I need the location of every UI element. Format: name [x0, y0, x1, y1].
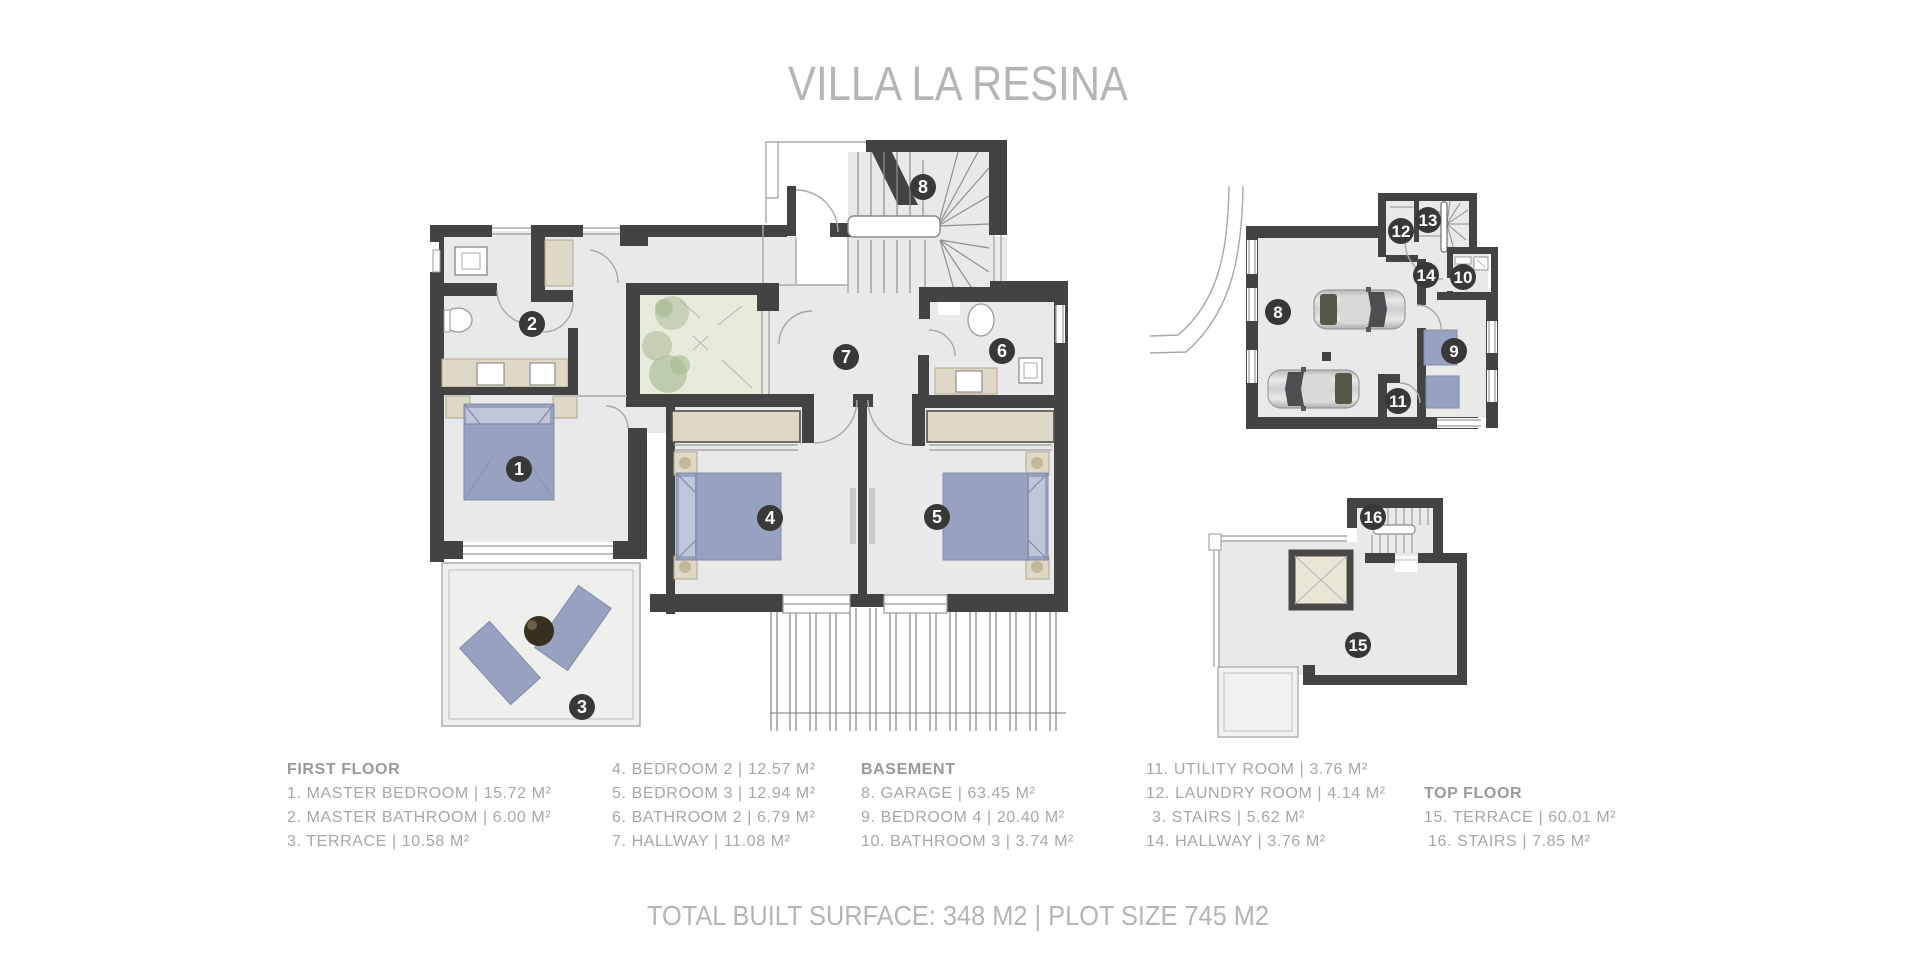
svg-text:1: 1	[514, 459, 524, 479]
svg-text:4: 4	[765, 508, 775, 528]
svg-text:14. HALLWAY | 3.76 M²: 14. HALLWAY | 3.76 M²	[1146, 833, 1326, 850]
svg-text:7. HALLWAY | 11.08 M²: 7. HALLWAY | 11.08 M²	[612, 833, 791, 850]
svg-text:3: 3	[577, 697, 587, 717]
svg-text:2. MASTER BATHROOM | 6.00 M²: 2. MASTER BATHROOM | 6.00 M²	[287, 809, 551, 826]
svg-text:16. STAIRS | 7.85 M²: 16. STAIRS | 7.85 M²	[1428, 833, 1591, 850]
svg-text:15. TERRACE | 60.01 M²: 15. TERRACE | 60.01 M²	[1424, 809, 1616, 826]
svg-text:12: 12	[1392, 222, 1411, 241]
svg-text:16: 16	[1364, 508, 1383, 527]
svg-text:8: 8	[1273, 303, 1282, 322]
svg-text:15: 15	[1349, 636, 1368, 655]
svg-text:9: 9	[1449, 342, 1458, 361]
svg-text:11. UTILITY ROOM | 3.76 M²: 11. UTILITY ROOM | 3.76 M²	[1146, 761, 1368, 778]
svg-text:VILLA LA RESINA: VILLA LA RESINA	[788, 58, 1128, 111]
svg-text:3. STAIRS | 5.62 M²: 3. STAIRS | 5.62 M²	[1152, 809, 1305, 826]
svg-text:2: 2	[527, 314, 537, 334]
svg-text:9. BEDROOM 4 | 20.40 M²: 9. BEDROOM 4 | 20.40 M²	[861, 809, 1065, 826]
svg-text:12. LAUNDRY ROOM | 4.14 M²: 12. LAUNDRY ROOM | 4.14 M²	[1146, 785, 1386, 802]
svg-text:FIRST FLOOR: FIRST FLOOR	[287, 761, 400, 778]
svg-text:10. BATHROOM 3 | 3.74 M²: 10. BATHROOM 3 | 3.74 M²	[861, 833, 1074, 850]
svg-text:14: 14	[1417, 266, 1436, 285]
svg-text:6. BATHROOM 2 | 6.79 M²: 6. BATHROOM 2 | 6.79 M²	[612, 809, 816, 826]
svg-text:8: 8	[918, 177, 928, 197]
svg-text:5. BEDROOM 3 | 12.94 M²: 5. BEDROOM 3 | 12.94 M²	[612, 785, 816, 802]
svg-text:3. TERRACE | 10.58 M²: 3. TERRACE | 10.58 M²	[287, 833, 470, 850]
svg-text:11: 11	[1389, 392, 1407, 411]
svg-text:4. BEDROOM 2 | 12.57 M²: 4. BEDROOM 2 | 12.57 M²	[612, 761, 816, 778]
svg-text:10: 10	[1454, 268, 1473, 287]
svg-text:TOP FLOOR: TOP FLOOR	[1424, 785, 1522, 802]
svg-text:6: 6	[997, 341, 1007, 361]
svg-text:13: 13	[1419, 211, 1438, 230]
svg-text:TOTAL BUILT SURFACE: 348 M2 |: TOTAL BUILT SURFACE: 348 M2 | PLOT SIZE …	[647, 900, 1269, 931]
svg-text:7: 7	[841, 347, 851, 367]
svg-text:BASEMENT: BASEMENT	[861, 761, 956, 778]
svg-text:1. MASTER BEDROOM | 15.72 M²: 1. MASTER BEDROOM | 15.72 M²	[287, 785, 552, 802]
svg-text:5: 5	[932, 507, 942, 527]
svg-text:8. GARAGE | 63.45 M²: 8. GARAGE | 63.45 M²	[861, 785, 1036, 802]
